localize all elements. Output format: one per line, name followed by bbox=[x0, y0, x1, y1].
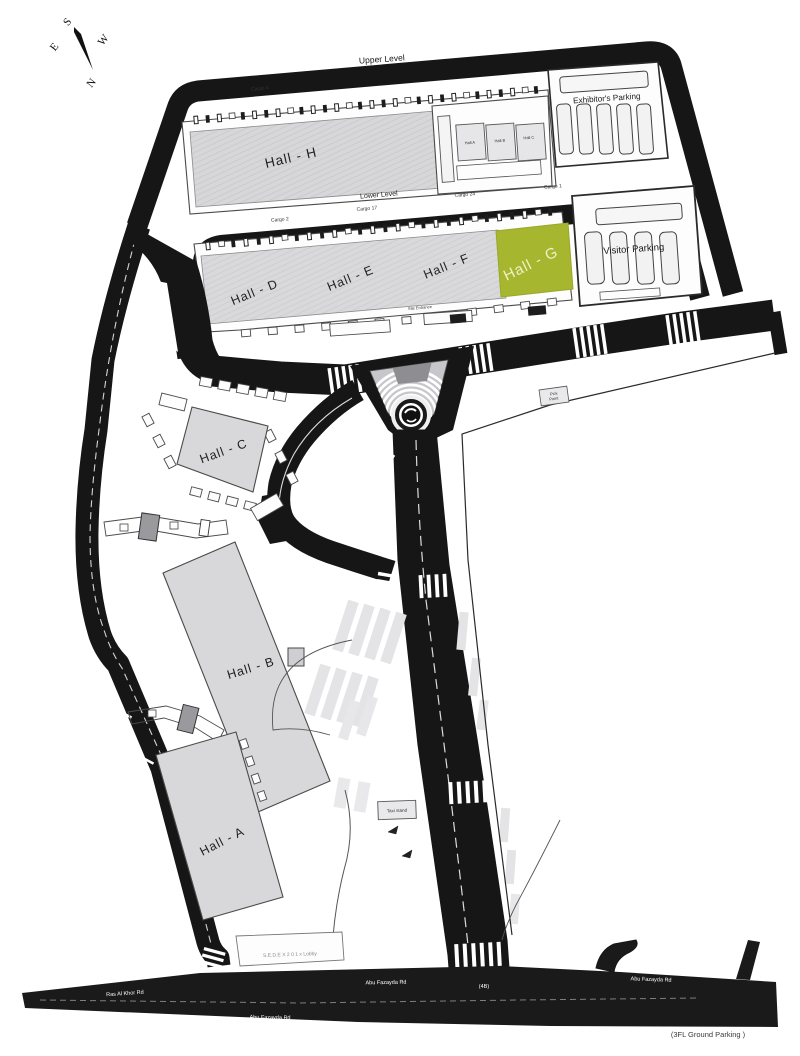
svg-text:Hall B: Hall B bbox=[494, 138, 505, 144]
svg-text:Hall C: Hall C bbox=[523, 135, 534, 141]
svg-text:Taxi stand: Taxi stand bbox=[387, 808, 408, 814]
svg-text:Abu Fazayda Rd: Abu Fazayda Rd bbox=[365, 980, 406, 987]
svg-text:(3FL Ground Parking ): (3FL Ground Parking ) bbox=[671, 1030, 746, 1039]
svg-text:Abu Fazayda Rd: Abu Fazayda Rd bbox=[249, 1015, 290, 1022]
svg-text:(4B): (4B) bbox=[479, 984, 490, 990]
svg-text:Hall A: Hall A bbox=[465, 140, 476, 146]
